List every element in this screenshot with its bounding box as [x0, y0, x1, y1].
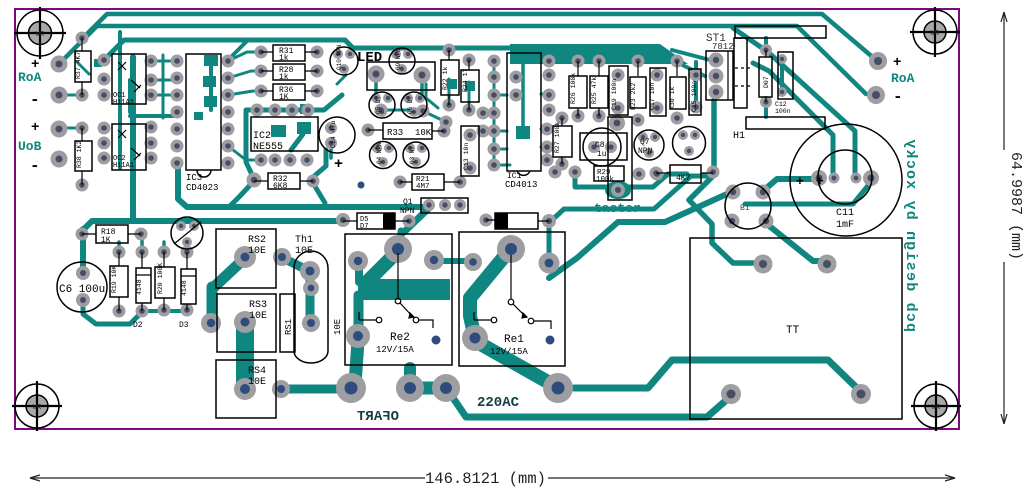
svg-text:WR: WR	[931, 30, 940, 38]
svg-text:H11A1: H11A1	[113, 162, 134, 170]
svg-text:1u: 1u	[597, 150, 607, 159]
svg-text:WR: WR	[33, 404, 42, 412]
svg-text:Q6 D?: Q6 D?	[407, 96, 414, 114]
svg-text:4K7: 4K7	[676, 174, 691, 183]
svg-text:UoB: UoB	[18, 139, 42, 154]
svg-text:10E: 10E	[249, 311, 267, 322]
svg-text:-: -	[30, 157, 40, 175]
svg-text:RoA: RoA	[18, 70, 42, 85]
svg-text:R30 1k: R30 1k	[669, 86, 676, 110]
svg-text:R37 4K7: R37 4K7	[75, 52, 82, 79]
svg-text:+: +	[31, 120, 39, 136]
svg-text:R38 1K2: R38 1K2	[76, 141, 83, 168]
svg-text:Q9 NPN: Q9 NPN	[395, 48, 402, 70]
svg-text:RoA: RoA	[891, 71, 915, 86]
svg-text:Q3 N?: Q3 N?	[409, 146, 416, 164]
svg-text:R27 100k: R27 100k	[554, 122, 561, 153]
svg-text:D2: D2	[133, 321, 143, 330]
svg-text:+: +	[796, 174, 804, 189]
svg-text:146.8121 (mm): 146.8121 (mm)	[425, 470, 546, 488]
svg-text:NPN: NPN	[638, 147, 653, 156]
svg-text:TT: TT	[786, 325, 800, 337]
svg-text:RS4: RS4	[248, 366, 266, 377]
svg-text:WR: WR	[932, 404, 941, 412]
svg-text:100k: 100k	[596, 176, 615, 184]
svg-text:OFART: OFART	[357, 409, 399, 425]
svg-text:NPN: NPN	[400, 207, 415, 216]
svg-text:R25 47k: R25 47k	[591, 77, 598, 104]
svg-text:1k: 1k	[279, 54, 289, 63]
svg-text:CD4023: CD4023	[186, 183, 218, 193]
svg-text:C14 47u: C14 47u	[330, 121, 337, 148]
svg-text:10E: 10E	[248, 377, 266, 388]
svg-text:-: -	[30, 91, 40, 109]
svg-text:7812: 7812	[712, 42, 734, 52]
svg-text:10E: 10E	[248, 246, 266, 257]
svg-text:C15 100n: C15 100n	[691, 81, 698, 112]
svg-text:R24 1?: R24 1?	[462, 68, 469, 92]
svg-text:1mF: 1mF	[836, 220, 854, 231]
svg-text:WR: WR	[36, 31, 45, 39]
svg-text:H11A1: H11A1	[113, 99, 134, 107]
svg-text:R33: R33	[387, 128, 403, 138]
svg-text:+: +	[816, 174, 824, 189]
svg-text:Q10 NPN: Q10 NPN	[336, 44, 343, 70]
svg-text:taster: taster	[594, 201, 641, 216]
svg-text:D3: D3	[179, 321, 189, 330]
svg-text:1K: 1K	[101, 236, 111, 245]
svg-text:4148: 4148	[181, 280, 188, 296]
svg-text:R26 100k: R26 100k	[570, 73, 577, 104]
svg-text:C11: C11	[836, 208, 854, 219]
svg-text:D07: D07	[763, 76, 770, 88]
svg-text:RS2: RS2	[248, 235, 266, 246]
svg-text:R19 10K: R19 10K	[111, 266, 118, 293]
svg-text:+: +	[893, 55, 901, 71]
svg-text:Re1: Re1	[504, 334, 524, 346]
svg-text:R20 100K: R20 100K	[157, 263, 164, 294]
svg-text:10E: 10E	[333, 319, 343, 335]
svg-text:+: +	[334, 156, 343, 173]
svg-text:C6 100u: C6 100u	[59, 284, 105, 296]
svg-text:Q1: Q1	[403, 198, 413, 207]
svg-text:C13 10n: C13 10n	[463, 143, 470, 170]
svg-text:B1: B1	[740, 204, 750, 213]
svg-text:4M7: 4M7	[416, 183, 430, 191]
svg-text:LED: LED	[357, 50, 382, 66]
svg-text:1K: 1K	[279, 93, 289, 102]
svg-text:100n: 100n	[775, 108, 791, 115]
svg-text:Re2: Re2	[390, 332, 410, 344]
svg-text:CD4013: CD4013	[505, 180, 537, 190]
svg-text:R23 2k2: R23 2k2	[630, 83, 637, 110]
svg-text:Q4 NPN: Q4 NPN	[376, 142, 383, 164]
svg-text:-: -	[893, 88, 903, 106]
svg-text:C17 10n: C17 10n	[649, 83, 656, 110]
svg-text:RS1: RS1	[284, 319, 294, 335]
svg-text:220AC: 220AC	[477, 395, 520, 411]
svg-text:IC2: IC2	[253, 131, 271, 142]
svg-text:pcb design by xocky: pcb design by xocky	[902, 138, 919, 332]
svg-text:Q5 D?: Q5 D?	[375, 96, 382, 114]
svg-text:Q7: Q7	[640, 138, 650, 147]
svg-text:H1: H1	[733, 131, 745, 142]
svg-text:64.9987 (mm): 64.9987 (mm)	[1007, 152, 1024, 260]
svg-text:Th1: Th1	[295, 234, 313, 246]
svg-text:NE555: NE555	[253, 142, 283, 153]
svg-text:C12: C12	[775, 101, 787, 108]
svg-text:RS3: RS3	[249, 300, 267, 311]
svg-text:D7: D7	[360, 223, 368, 231]
svg-text:12V/15A: 12V/15A	[376, 345, 414, 355]
svg-text:10K: 10K	[415, 128, 432, 138]
svg-text:R22 1k: R22 1k	[442, 66, 449, 90]
svg-text:C8: C8	[595, 141, 605, 150]
svg-text:12V/15A: 12V/15A	[490, 347, 528, 357]
svg-text:1k: 1k	[279, 73, 289, 82]
svg-text:10E: 10E	[295, 246, 313, 257]
svg-text:6K8: 6K8	[273, 182, 288, 191]
svg-text:C19 100n: C19 100n	[611, 79, 618, 110]
svg-text:IC3: IC3	[186, 173, 202, 183]
svg-text:4148: 4148	[136, 279, 143, 295]
